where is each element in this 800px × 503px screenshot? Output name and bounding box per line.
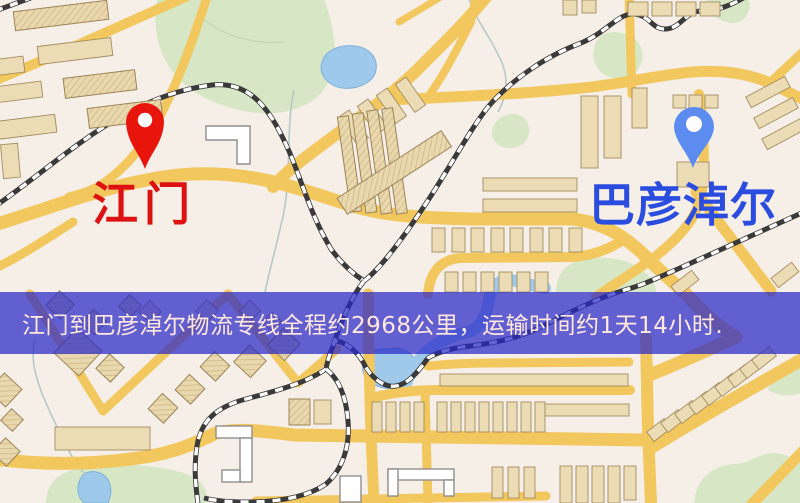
destination-pin-hole xyxy=(686,116,702,132)
origin-pin-hole xyxy=(138,113,152,127)
route-info-banner: 江门到巴彦淖尔物流专线全程约2968公里，运输时间约1天14小时. xyxy=(0,292,800,354)
map-screenshot: 巴彦淖尔 江门 江门到巴彦淖尔物流专线全程约2968公里，运输时间约1天14小时… xyxy=(0,0,800,503)
map-canvas[interactable]: 巴彦淖尔 江门 xyxy=(0,0,800,503)
destination-label: 巴彦淖尔 xyxy=(589,178,777,232)
origin-label: 江门 xyxy=(92,177,196,231)
route-info-text: 江门到巴彦淖尔物流专线全程约2968公里，运输时间约1天14小时. xyxy=(0,306,723,340)
